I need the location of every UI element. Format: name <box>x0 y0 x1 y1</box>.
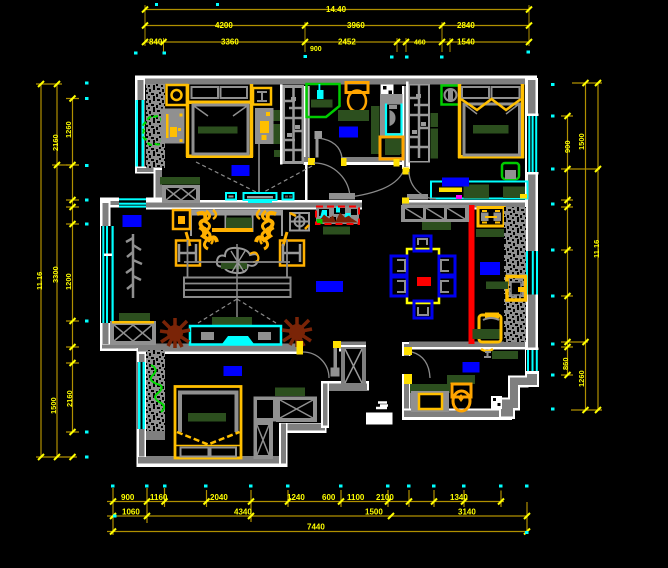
svg-text:1260: 1260 <box>64 121 73 138</box>
svg-text:1160: 1160 <box>150 493 168 502</box>
svg-text:1500: 1500 <box>49 397 58 414</box>
svg-text:4340: 4340 <box>234 508 252 517</box>
svg-text:2100: 2100 <box>376 493 394 502</box>
svg-text:900: 900 <box>563 140 572 153</box>
svg-text:1100: 1100 <box>347 493 365 502</box>
svg-text:600: 600 <box>322 493 336 502</box>
svg-text:11.16: 11.16 <box>592 240 601 258</box>
svg-text:14.40: 14.40 <box>326 5 347 14</box>
svg-text:1060: 1060 <box>122 508 140 517</box>
svg-text:900: 900 <box>121 493 135 502</box>
svg-text:840: 840 <box>149 38 163 47</box>
svg-text:11.16: 11.16 <box>35 272 44 290</box>
svg-text:2160: 2160 <box>65 390 74 407</box>
svg-text:1500: 1500 <box>577 133 586 150</box>
svg-text:3300: 3300 <box>51 266 60 283</box>
svg-text:2160: 2160 <box>51 134 60 151</box>
svg-text:1200: 1200 <box>64 273 73 290</box>
svg-text:460: 460 <box>414 40 426 47</box>
svg-text:4200: 4200 <box>215 21 233 30</box>
svg-text:1260: 1260 <box>577 370 586 387</box>
svg-text:1340: 1340 <box>450 493 468 502</box>
svg-text:3960: 3960 <box>347 21 365 30</box>
svg-text:1500: 1500 <box>365 508 383 517</box>
svg-text:900: 900 <box>310 46 322 53</box>
svg-text:2840: 2840 <box>457 21 475 30</box>
svg-text:3140: 3140 <box>458 508 476 517</box>
svg-text:2040: 2040 <box>210 493 228 502</box>
svg-text:7440: 7440 <box>307 523 325 532</box>
svg-text:2452: 2452 <box>338 38 356 47</box>
svg-text:1240: 1240 <box>287 493 305 502</box>
svg-text:3360: 3360 <box>221 38 239 47</box>
svg-text:1540: 1540 <box>457 38 475 47</box>
svg-text:860: 860 <box>561 357 570 370</box>
